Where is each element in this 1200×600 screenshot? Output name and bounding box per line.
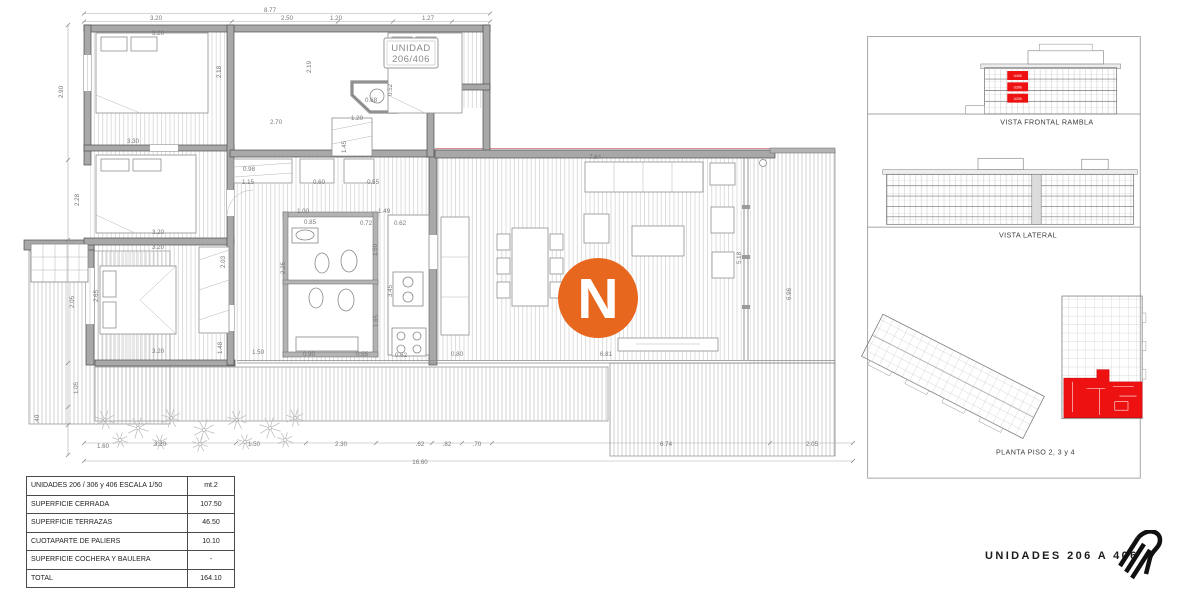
caption-vista-lateral: VISTA LATERAL <box>999 232 1057 240</box>
dim-label: 8.77 <box>264 7 277 14</box>
dim-label: 0.98 <box>243 166 256 173</box>
floor-plan: 8.773.202.501.201.273.202.182.190.680.52… <box>0 0 855 470</box>
dim-label: 3.45 <box>387 284 394 297</box>
dim-label: 2.19 <box>306 60 313 73</box>
dim-label: 1.50 <box>372 243 379 256</box>
dim-label: 3.20 <box>152 244 165 251</box>
dim-label: 2.70 <box>270 119 283 126</box>
dim-label: 1.15 <box>242 179 255 186</box>
dim-label: 16.60 <box>412 459 428 466</box>
row-label: SUPERFICIE CERRADA <box>27 495 188 514</box>
row-value: 10.10 <box>188 532 235 551</box>
dim-label: 2.28 <box>74 193 81 206</box>
dim-label: 0.52 <box>387 83 394 96</box>
row-value: mt.2 <box>188 477 235 496</box>
row-label: UNIDADES 206 / 306 y 406 ESCALA 1/50 <box>27 477 188 496</box>
dim-label: .70 <box>473 441 482 448</box>
dim-label: 1.27 <box>422 15 435 22</box>
north-compass: N <box>558 258 638 338</box>
dim-label: 2.03 <box>220 255 227 268</box>
unit-tag: U406 <box>1014 74 1022 78</box>
unit-label-line2: 206/406 <box>392 54 430 65</box>
dim-label: 1.65 <box>373 314 380 327</box>
row-value: 46.50 <box>188 514 235 533</box>
row-value: 164.10 <box>188 569 235 588</box>
dim-label: 2.05 <box>69 295 76 308</box>
table-row: CUOTAPARTE DE PALIERS10.10 <box>27 532 235 551</box>
dim-label: 0.85 <box>304 219 317 226</box>
row-label: TOTAL <box>27 569 188 588</box>
dim-label: 3.20 <box>150 15 163 22</box>
dim-label: 1.60 <box>97 443 110 450</box>
dim-label: 1.49 <box>378 208 391 215</box>
dim-label: 7.64 <box>589 154 602 161</box>
unit-label-line1: UNIDAD <box>391 43 430 54</box>
dim-label: 1.20 <box>351 115 364 122</box>
dim-label: 6.74 <box>660 441 673 448</box>
dim-label: 1.05 <box>73 381 80 394</box>
table-row: SUPERFICIE TERRAZAS46.50 <box>27 514 235 533</box>
row-value: - <box>188 551 235 570</box>
swan-logo-icon <box>1116 530 1168 582</box>
north-letter: N <box>577 267 618 331</box>
dim-label: 1.48 <box>217 341 224 354</box>
table-row: SUPERFICIE CERRADA107.50 <box>27 495 235 514</box>
dim-label: 3.20 <box>152 229 165 236</box>
table-row: TOTAL164.10 <box>27 569 235 588</box>
dim-label: 3.20 <box>152 30 165 37</box>
planter-box <box>31 244 88 282</box>
dim-label: 1.50 <box>252 349 265 356</box>
dim-label: .40 <box>34 414 41 423</box>
dim-label: 2.30 <box>335 441 348 448</box>
dim-label: 3.30 <box>127 138 140 145</box>
unit-tag: U206 <box>1014 97 1022 101</box>
dim-label: 0.80 <box>451 351 464 358</box>
dim-label: 3.20 <box>152 348 165 355</box>
dim-label: .62 <box>416 441 425 448</box>
view-key-plan: PLANTA PISO 2, 3 y 4 <box>859 296 1146 456</box>
dim-label: 0.62 <box>395 352 408 359</box>
dim-label: 1.00 <box>297 208 310 215</box>
dim-label: 0.60 <box>313 179 326 186</box>
row-label: CUOTAPARTE DE PALIERS <box>27 532 188 551</box>
caption-planta-piso: PLANTA PISO 2, 3 y 4 <box>996 449 1075 457</box>
dim-label: 1.50 <box>248 441 261 448</box>
dim-label: 0.90 <box>303 351 316 358</box>
dim-label: 3.20 <box>154 441 167 448</box>
dim-label: 6.96 <box>786 287 793 300</box>
dim-label: 2.90 <box>58 85 65 98</box>
dim-label: 0.72 <box>360 220 373 227</box>
dim-label: 0.55 <box>367 179 380 186</box>
dim-label: 2.05 <box>806 441 819 448</box>
dim-label: 2.50 <box>281 15 294 22</box>
dim-label: 1.45 <box>341 140 348 153</box>
row-value: 107.50 <box>188 495 235 514</box>
dim-label: .82 <box>443 441 452 448</box>
dim-label: 0.68 <box>365 97 378 104</box>
dim-label: 2.18 <box>216 65 223 78</box>
caption-vista-frontal: VISTA FRONTAL RAMBLA <box>1000 118 1093 126</box>
table-row: UNIDADES 206 / 306 y 406 ESCALA 1/50mt.2 <box>27 477 235 496</box>
view-frontal-rambla: U406U306U206 VISTA FRONTAL RAMBLA <box>966 44 1121 126</box>
unit-tag: U306 <box>1014 85 1022 89</box>
dim-label: 0.62 <box>394 220 407 227</box>
dim-label: 2.65 <box>93 289 100 302</box>
row-label: SUPERFICIE COCHERA Y BAULERA <box>27 551 188 570</box>
surface-summary-table: UNIDADES 206 / 306 y 406 ESCALA 1/50mt.2… <box>26 476 235 588</box>
table-row: SUPERFICIE COCHERA Y BAULERA- <box>27 551 235 570</box>
row-label: SUPERFICIE TERRAZAS <box>27 514 188 533</box>
sidebar-views: U406U306U206 VISTA FRONTAL RAMBLA VISTA … <box>856 30 1200 530</box>
unit-label-box: UNIDAD 206/406 <box>384 38 438 68</box>
dim-label: 6.81 <box>600 351 613 358</box>
dim-label: 5.18 <box>736 251 743 264</box>
dim-label: 0.55 <box>356 351 369 358</box>
dim-label: 1.20 <box>330 15 343 22</box>
dim-label: 2.25 <box>280 261 287 274</box>
